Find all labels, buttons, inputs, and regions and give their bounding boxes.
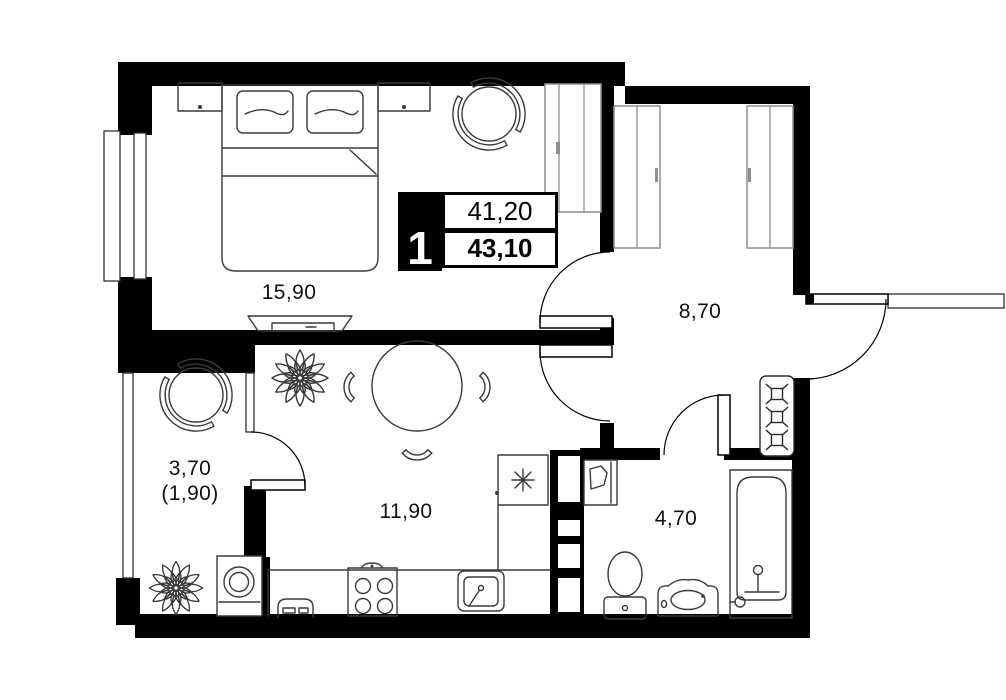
loggia-area-label: 3,70 [169,457,211,481]
hallway-area-label: 8,70 [679,300,721,324]
unit-info-badge: 1 41,20 43,10 [398,192,558,271]
bathroom-door [664,395,730,455]
entry-door [806,294,888,379]
loggia-partition [246,373,254,432]
service-shafts [550,450,584,616]
bathtub [730,470,792,618]
round-chair-bedroom [453,78,525,150]
loggia-reduced-area-label: (1,90) [161,482,218,506]
living-area-value: 41,20 [442,192,558,230]
corridor-wall [888,294,1004,308]
walls [116,62,810,638]
living-room-door [540,345,612,421]
bedroom-window [104,131,146,281]
loggia-door [251,432,305,490]
bathroom-area-label: 4,70 [655,507,697,531]
floor-plan: 15,90 8,70 11,90 3,70 (1,90) 4,70 1 41,2… [0,0,1006,700]
dining-table [372,341,462,431]
closet-right [747,106,793,248]
floor-plan-drawing [0,0,1006,700]
washing-machine [217,556,262,616]
plant-loggia [149,561,202,614]
water-heater [584,460,617,505]
total-area-value: 43,10 [442,230,558,269]
dining-chairs [344,372,490,460]
bedroom-area-label: 15,90 [262,281,317,305]
tv-stand [248,316,352,331]
nightstand-left [178,83,222,111]
plant-kitchen [272,350,328,406]
bathroom-sink [658,580,718,616]
loggia-glazing [123,373,133,578]
kitchen-sink [458,571,504,611]
kitchen-living-area-label: 11,90 [380,500,433,524]
bed [222,85,378,271]
rooms-count: 1 [398,192,442,271]
toilet [604,552,646,619]
nightstand-right [378,83,430,111]
closet-left [614,106,660,248]
refrigerator [495,455,548,505]
ventilation-unit [760,376,794,456]
pillow-right [307,91,363,133]
pillow-left [237,91,293,133]
stove [348,563,397,616]
